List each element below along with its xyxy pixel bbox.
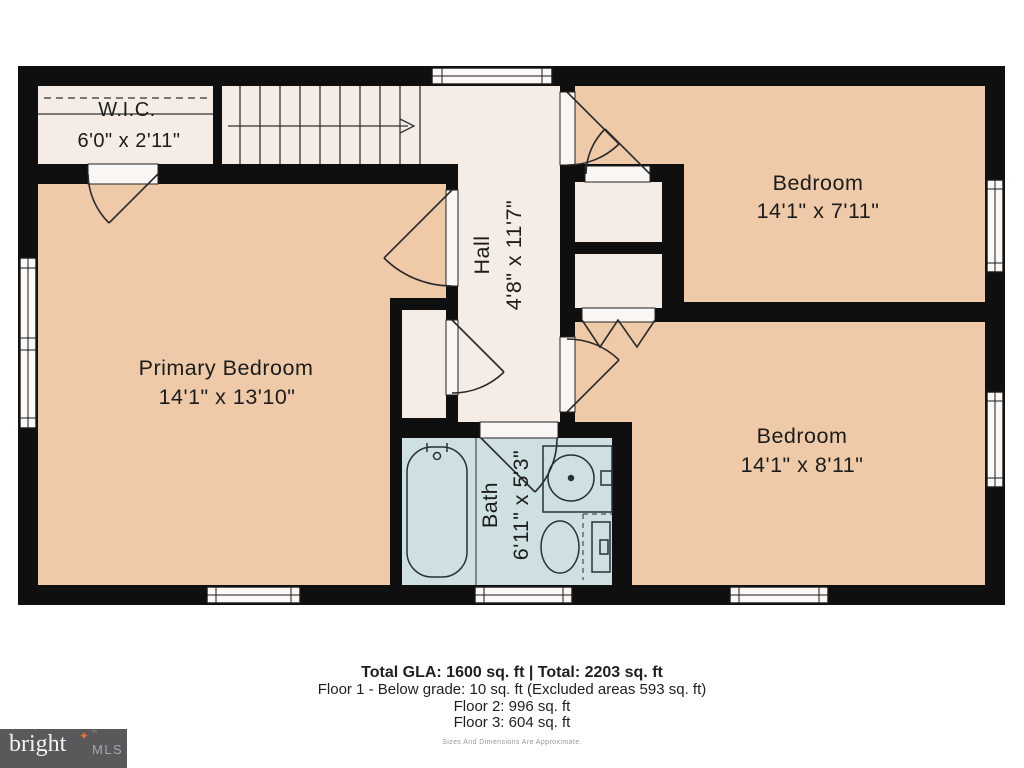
wall-closet-bottom [390, 418, 458, 430]
logo-brand-text: bright [9, 731, 66, 758]
wic-label: W.I.C. [98, 99, 155, 121]
logo-star-icon: ✦ [79, 729, 89, 743]
wall-wic-stairs [213, 86, 222, 166]
primary-bedroom-dims: 14'1" x 13'10" [159, 385, 296, 409]
summary-floor1: Floor 1 - Below grade: 10 sq. ft (Exclud… [0, 682, 1024, 699]
opening-bedroom-top [560, 92, 575, 165]
summary-total: Total GLA: 1600 sq. ft | Total: 2203 sq.… [0, 664, 1024, 682]
bath-label: Bath [478, 482, 502, 528]
bedroom-top-label: Bedroom [773, 171, 864, 195]
summary-floor2: Floor 2: 996 sq. ft [0, 699, 1024, 716]
bedroom-top-dims: 14'1" x 7'11" [757, 199, 880, 223]
wall-closet-left [390, 298, 402, 430]
wall-closets-divider [575, 242, 662, 254]
floor-plan: W.I.C. 6'0" x 2'11" Primary Bedroom 14'1… [0, 0, 1024, 768]
hall-label: Hall [470, 235, 494, 274]
bath-dims: 6'11" x 5'3" [509, 450, 533, 560]
opening-primary-closet [446, 320, 458, 395]
logo-suffix-text: MLS [92, 742, 123, 757]
opening-wic [88, 164, 158, 184]
sink-drain [569, 476, 574, 481]
opening-bath [480, 422, 558, 438]
wall-primary-top [18, 164, 458, 184]
wall-bedrooms-divider [662, 302, 985, 322]
hall-dims: 4'8" x 11'7" [502, 200, 526, 310]
opening-primary [446, 190, 458, 286]
bedroom-bottom-label: Bedroom [757, 424, 848, 448]
opening-bedroom-bottom [560, 337, 575, 412]
area-summary: Total GLA: 1600 sq. ft | Total: 2203 sq.… [0, 664, 1024, 746]
room-wic [38, 86, 213, 166]
wic-dims: 6'0" x 2'11" [77, 130, 180, 152]
logo-trademark: ™ [91, 730, 97, 736]
wall-closets-right [662, 164, 684, 322]
bright-mls-logo: bright ✦ ™ MLS [0, 729, 127, 768]
primary-bedroom-label: Primary Bedroom [139, 356, 314, 380]
summary-floor3: Floor 3: 604 sq. ft [0, 715, 1024, 732]
bedroom-bottom-dims: 14'1" x 8'11" [741, 453, 864, 477]
summary-disclaimer: Sizes And Dimensions Are Approximate. [0, 739, 1024, 746]
wall-closet-top [390, 298, 458, 310]
room-primary-closet [402, 310, 446, 418]
opening-closet-top [585, 166, 650, 182]
floor-plan-page: W.I.C. 6'0" x 2'11" Primary Bedroom 14'1… [0, 0, 1024, 768]
